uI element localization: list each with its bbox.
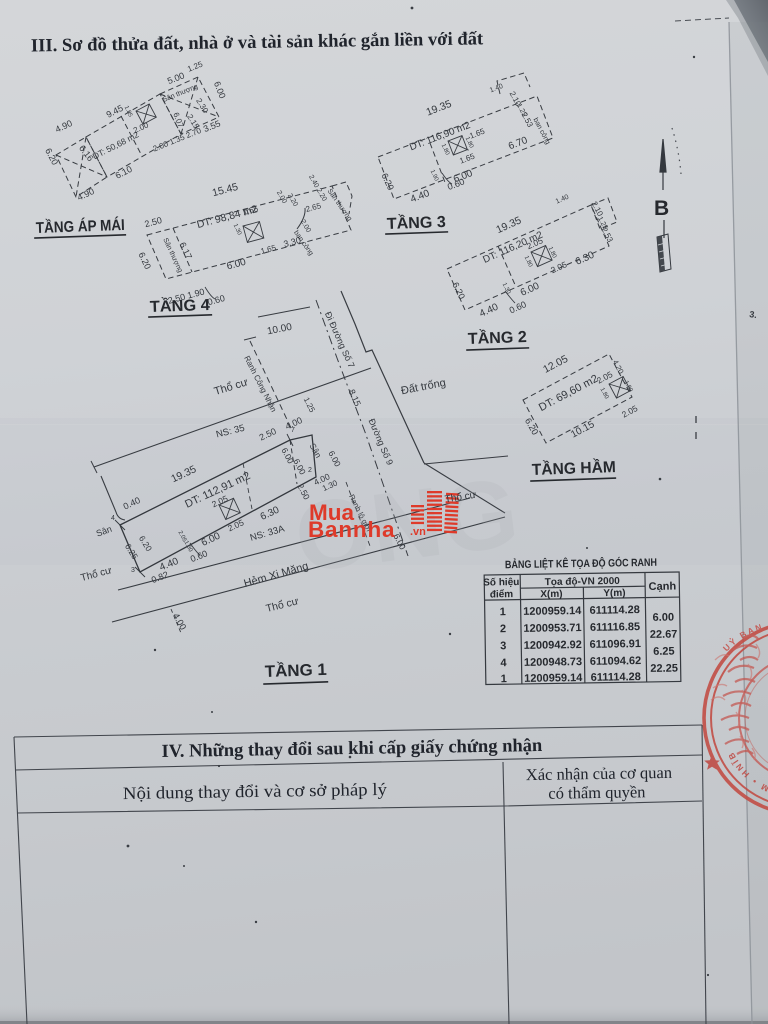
svg-text:Y(m): Y(m): [603, 588, 625, 599]
svg-text:1200959.14: 1200959.14: [523, 605, 582, 618]
svg-text:điểm: điểm: [490, 588, 514, 600]
svg-text:X(m): X(m): [540, 589, 562, 600]
svg-text:.vn: .vn: [410, 526, 426, 538]
svg-text:Xác nhận của cơ quan: Xác nhận của cơ quan: [526, 763, 672, 784]
svg-text:Số hiệu: Số hiệu: [483, 576, 519, 589]
svg-text:611114.28: 611114.28: [591, 671, 641, 684]
svg-text:có thẩm quyền: có thẩm quyền: [548, 782, 645, 803]
svg-text:B: B: [654, 197, 669, 220]
svg-text:TẦNG 3: TẦNG 3: [386, 212, 446, 233]
svg-text:4: 4: [500, 657, 507, 669]
svg-text:22.67: 22.67: [650, 629, 678, 641]
svg-text:Tọa độ-VN 2000: Tọa độ-VN 2000: [545, 576, 621, 588]
svg-text:TẦNG 2: TẦNG 2: [467, 327, 527, 348]
svg-text:Nội dung thay đổi và cơ sở phá: Nội dung thay đổi và cơ sở pháp lý: [123, 779, 388, 803]
svg-text:3: 3: [131, 567, 135, 574]
svg-text:6.00: 6.00: [653, 612, 675, 624]
svg-text:BẢNG LIỆT KÊ TỌA ĐỘ GÓC RANH: BẢNG LIỆT KÊ TỌA ĐỘ GÓC RANH: [505, 556, 657, 571]
svg-text:611094.62: 611094.62: [590, 655, 642, 668]
svg-text:6.25: 6.25: [653, 646, 675, 658]
svg-text:3: 3: [500, 640, 506, 652]
svg-text:2: 2: [500, 623, 506, 635]
svg-text:TẦNG 1: TẦNG 1: [264, 660, 327, 681]
svg-text:611114.28: 611114.28: [590, 604, 640, 617]
svg-text:Cạnh: Cạnh: [649, 581, 677, 593]
svg-text:1200948.73: 1200948.73: [524, 656, 582, 669]
svg-text:TẦNG 4: TẦNG 4: [149, 295, 210, 316]
svg-text:611116.85: 611116.85: [590, 621, 640, 634]
svg-text:1: 1: [500, 606, 506, 618]
svg-text:TẦNG ÁP MÁI: TẦNG ÁP MÁI: [36, 217, 126, 237]
svg-text:4: 4: [111, 515, 115, 522]
svg-text:1200953.71: 1200953.71: [523, 622, 581, 635]
svg-text:611096.91: 611096.91: [589, 638, 641, 651]
svg-text:Bannha: Bannha: [308, 517, 395, 542]
svg-text:3.: 3.: [749, 309, 758, 320]
svg-text:1200942.92: 1200942.92: [524, 639, 582, 652]
svg-text:2: 2: [308, 467, 312, 474]
svg-text:1: 1: [501, 673, 507, 685]
svg-text:1200959.14: 1200959.14: [524, 672, 583, 685]
svg-text:22.25: 22.25: [650, 662, 678, 674]
